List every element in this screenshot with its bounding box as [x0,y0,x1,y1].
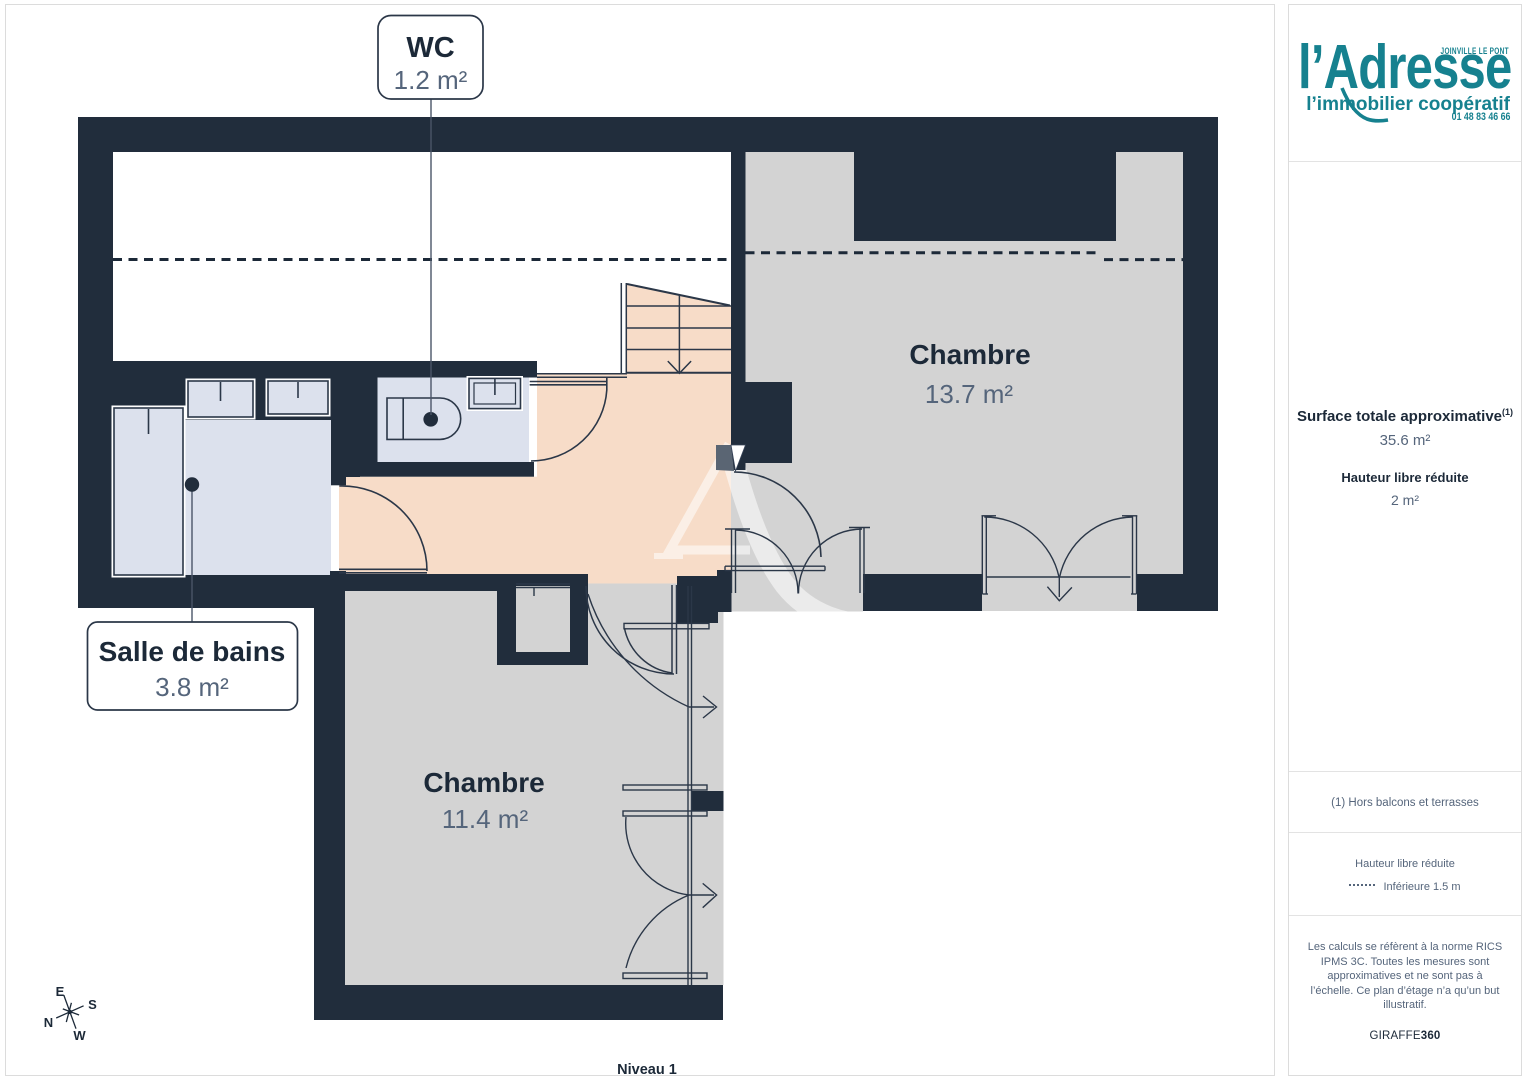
svg-text:Niveau 1: Niveau 1 [617,1062,677,1078]
svg-text:11.4 m²: 11.4 m² [442,804,529,834]
svg-text:Chambre: Chambre [909,339,1030,370]
svg-text:W: W [73,1028,86,1043]
svg-text:WC: WC [406,32,454,64]
svg-text:Salle de bains: Salle de bains [99,636,286,667]
svg-text:3.8 m²: 3.8 m² [155,672,229,702]
svg-text:N: N [44,1015,53,1030]
svg-text:Chambre: Chambre [423,767,544,798]
svg-text:S: S [88,997,97,1012]
svg-text:E: E [56,984,65,999]
svg-text:1.2 m²: 1.2 m² [394,65,468,95]
svg-text:13.7 m²: 13.7 m² [925,379,1013,409]
